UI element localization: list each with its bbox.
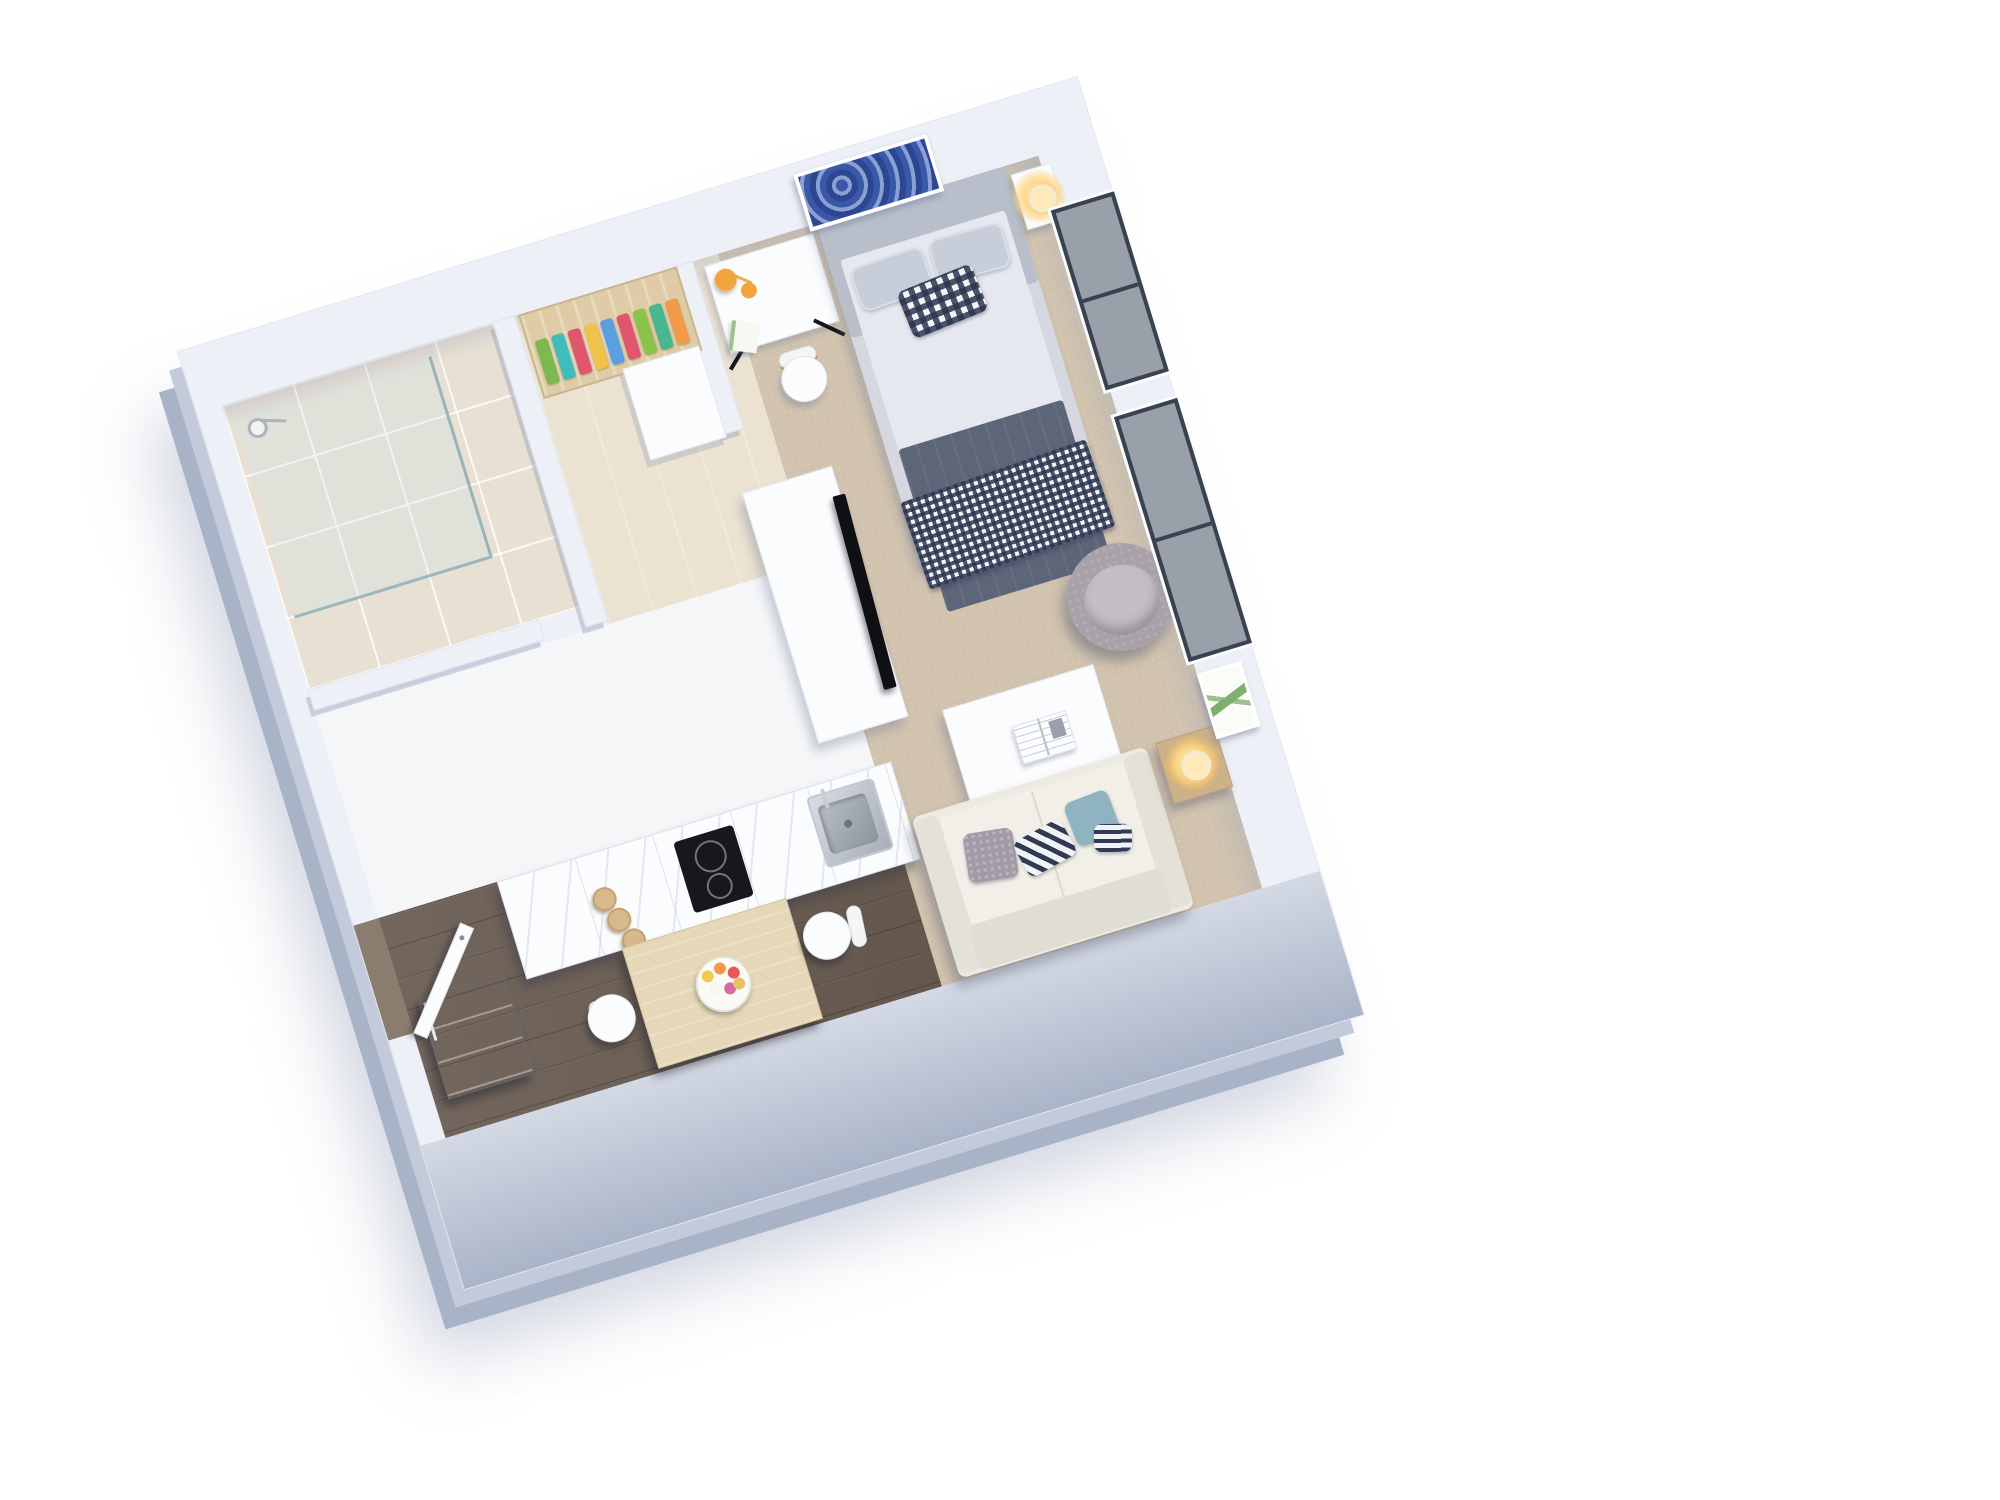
window-mullion (1082, 282, 1139, 303)
render-canvas (0, 0, 2000, 1500)
window-mullion (1155, 521, 1212, 542)
door-handle (459, 935, 466, 942)
shower-arm (260, 419, 286, 422)
notebook (729, 320, 760, 353)
floor-plan (178, 77, 1363, 1289)
striped-throw-pillow (1094, 824, 1132, 853)
knit-throw-pillow (962, 827, 1019, 884)
